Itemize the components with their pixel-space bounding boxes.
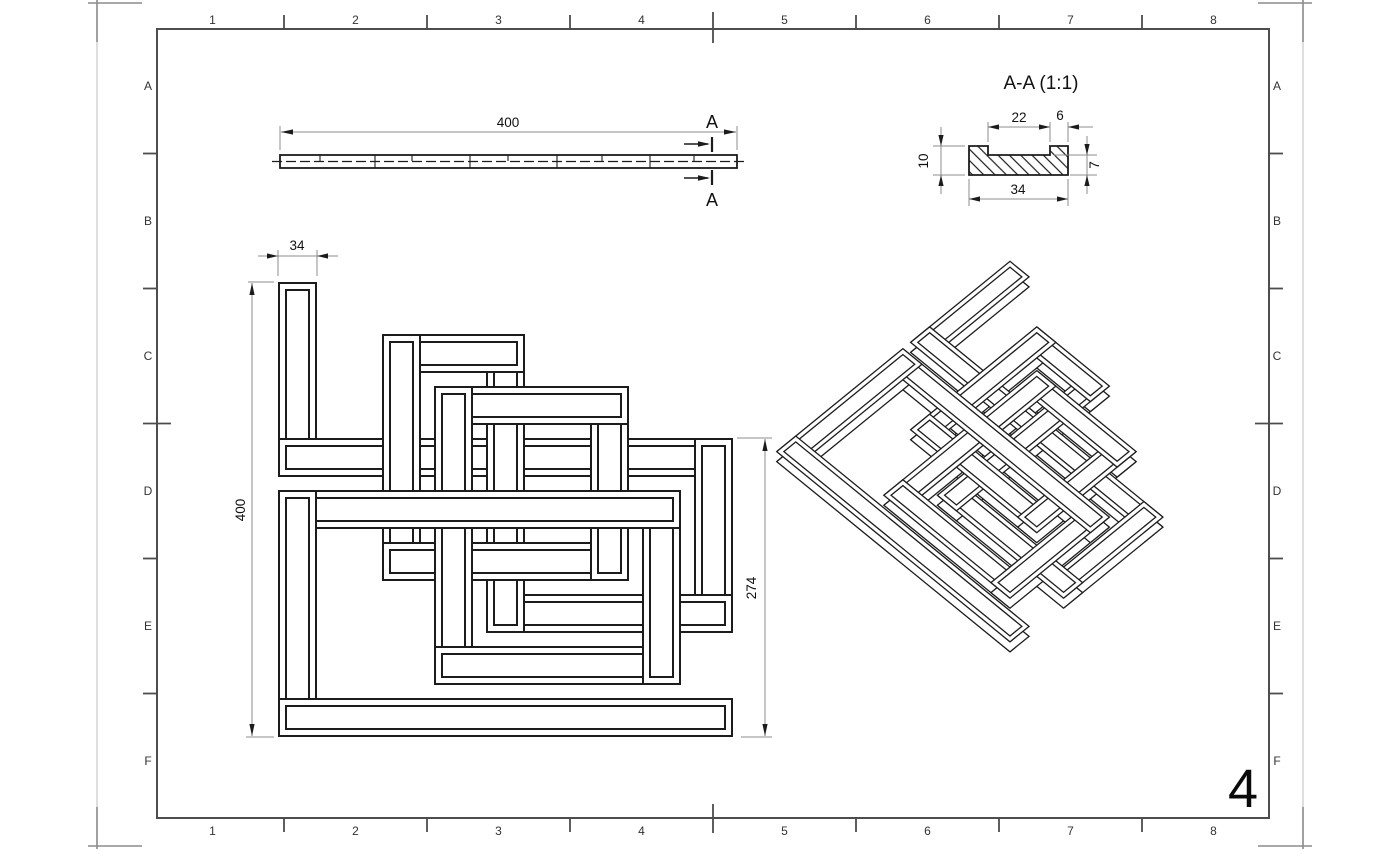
dim-notch-22: 22 (988, 110, 1050, 142)
zone-label-right-c: C (1273, 349, 1282, 363)
side-elevation-view: 400 A A (272, 112, 745, 210)
dim-width-34: 34 (969, 179, 1068, 206)
dim-height-400: 400 (233, 282, 274, 737)
dim-height-10: 10 (916, 127, 965, 194)
front-view-knot (278, 282, 733, 735)
dim-text-width: 34 (1010, 182, 1026, 197)
zone-label-right-a: A (1273, 79, 1281, 93)
iso-view-top (777, 261, 1245, 642)
zone-label-bottom-8: 8 (1210, 824, 1217, 838)
dim-text-length: 400 (497, 115, 520, 130)
zone-label-left-a: A (144, 79, 152, 93)
zone-label-top-7: 7 (1067, 13, 1074, 27)
zone-label-top-4: 4 (638, 13, 645, 27)
zone-label-top-1: 1 (209, 13, 216, 27)
dim-text-front-height: 400 (233, 499, 248, 522)
section-view: A-A (1:1) 22 6 10 (916, 73, 1102, 206)
zone-label-bottom-6: 6 (924, 824, 931, 838)
zone-label-top-5: 5 (781, 13, 788, 27)
dim-text-edge-offset: 6 (1056, 108, 1064, 123)
dim-text-strip-width: 34 (289, 238, 305, 253)
drawing-canvas: 1 2 3 4 5 6 7 8 1 2 3 4 5 6 7 8 A B C D … (0, 0, 1400, 849)
zone-label-top-8: 8 (1210, 13, 1217, 27)
dim-partial-274: 274 (737, 438, 772, 737)
zone-label-top-2: 2 (352, 13, 359, 27)
section-label-top: A (706, 112, 718, 132)
dim-text-notch-width: 22 (1011, 110, 1026, 125)
zone-label-right-e: E (1273, 619, 1281, 633)
dim-text-base-thickness: 7 (1087, 161, 1102, 169)
zone-label-bottom-5: 5 (781, 824, 788, 838)
zone-label-top-6: 6 (924, 13, 931, 27)
zone-label-left-b: B (144, 214, 152, 228)
zone-label-bottom-7: 7 (1067, 824, 1074, 838)
zone-label-bottom-4: 4 (638, 824, 645, 838)
zone-label-left-c: C (144, 349, 153, 363)
knot-strip-line (790, 360, 908, 456)
cad-sheet: 1 2 3 4 5 6 7 8 1 2 3 4 5 6 7 8 A B C D … (0, 0, 1400, 849)
zone-label-right-f: F (1273, 754, 1280, 768)
dim-text-partial-height: 274 (744, 576, 759, 599)
section-view-title: A-A (1:1) (1004, 73, 1079, 94)
zone-label-bottom-2: 2 (352, 824, 359, 838)
dim-strip-34: 34 (258, 238, 338, 276)
zone-label-left-e: E (144, 619, 152, 633)
zone-label-left-f: F (144, 754, 151, 768)
section-label-bottom: A (706, 190, 718, 210)
section-profile (969, 146, 1068, 175)
zone-label-top-3: 3 (495, 13, 502, 27)
sheet-number: 4 (1228, 759, 1258, 819)
zone-label-bottom-1: 1 (209, 824, 216, 838)
dim-text-height: 10 (916, 153, 931, 168)
dim-length-400: 400 (280, 115, 737, 150)
zone-label-left-d: D (144, 484, 153, 498)
zone-label-right-b: B (1273, 214, 1281, 228)
zone-label-right-d: D (1273, 484, 1282, 498)
zone-label-bottom-3: 3 (495, 824, 502, 838)
